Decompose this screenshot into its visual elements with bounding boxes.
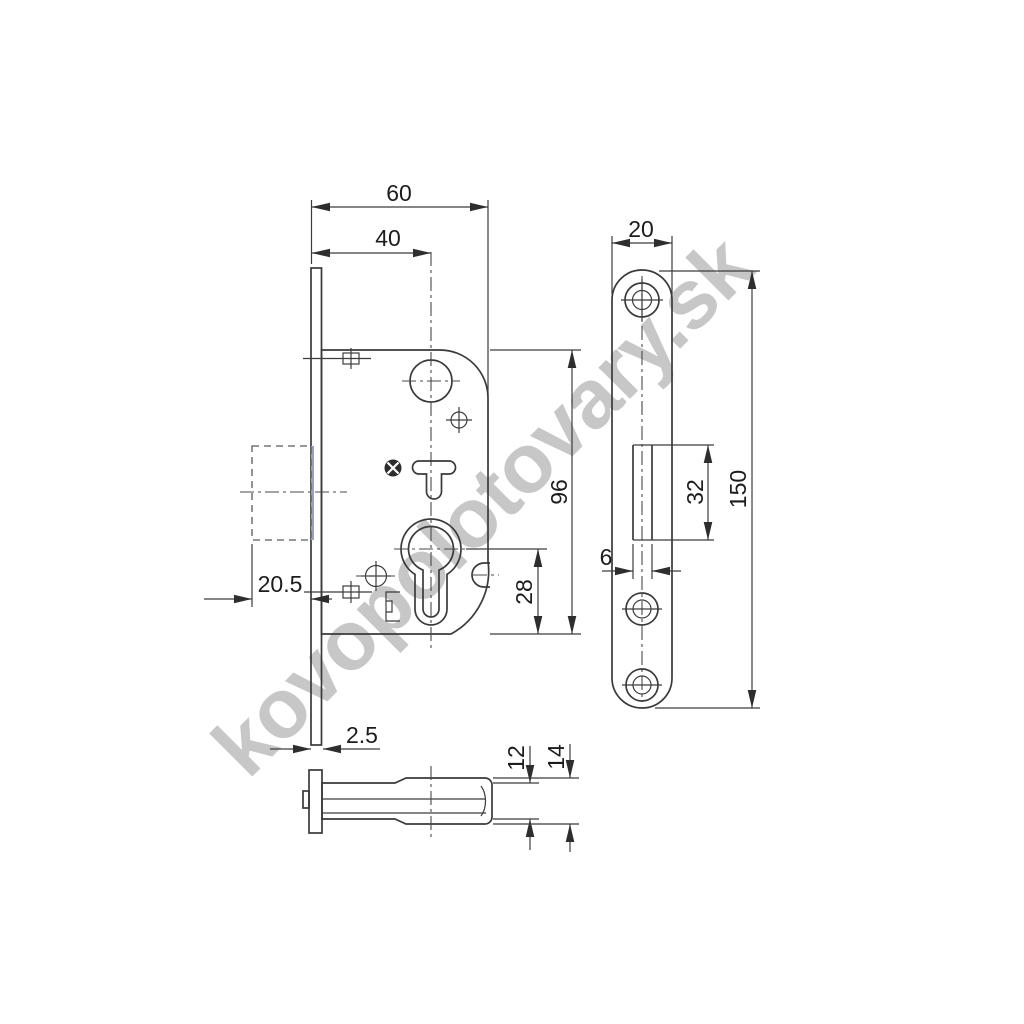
arrowhead [566, 824, 575, 842]
phillips-screw-icon [385, 460, 402, 477]
arrowhead [413, 249, 431, 258]
arrowhead [748, 690, 757, 708]
arrowhead [568, 616, 577, 634]
lock-technical-drawing: 60 40 96 [0, 0, 1024, 1024]
dim-label-6: 6 [600, 544, 613, 570]
arrowhead [534, 549, 543, 567]
arrowhead [704, 445, 713, 463]
arrowhead [652, 567, 670, 576]
side-view: 12 14 [303, 744, 579, 852]
dim-label-28: 28 [511, 579, 537, 605]
latch-tip-side [303, 791, 309, 808]
arrowhead [293, 745, 311, 754]
arrowhead [234, 595, 252, 604]
arrowhead [312, 203, 331, 212]
dim-case-depth: 60 [312, 180, 489, 396]
arrowhead [323, 745, 341, 754]
dim-label-20-5: 20.5 [258, 571, 303, 597]
latch-channel-end [481, 786, 486, 816]
arrowhead [654, 239, 672, 248]
dim-label-12: 12 [503, 745, 529, 771]
faceplate-side-outline [309, 770, 322, 833]
arrowhead [568, 350, 577, 368]
drawing-canvas: kovopolotovary.sk [0, 0, 1024, 1024]
dim-label-60: 60 [386, 180, 412, 206]
dim-body-inner-thickness: 12 [493, 745, 539, 850]
arrowhead [470, 203, 488, 212]
clip-bracket [386, 592, 400, 621]
dim-label-20: 20 [628, 216, 654, 242]
dim-latch-protrusion: 20.5 [204, 544, 332, 607]
t-slot [413, 461, 456, 499]
case-side-outline [322, 778, 492, 824]
dim-label-40: 40 [375, 225, 401, 251]
arrowhead [311, 595, 329, 604]
dim-label-14: 14 [543, 744, 569, 770]
latch-bolt-hidden [252, 446, 311, 540]
arrowhead [615, 567, 633, 576]
front-view: 60 40 96 [204, 180, 581, 753]
dim-faceplate-thickness: 2.5 [270, 722, 380, 753]
fixing-nut-top [303, 348, 371, 369]
screw-hole-top [621, 279, 663, 321]
dim-label-96: 96 [546, 479, 572, 505]
dim-label-150: 150 [725, 470, 751, 508]
arrowhead [526, 819, 535, 837]
dim-cutout-height: 32 [633, 445, 714, 540]
arrowhead [534, 616, 543, 634]
screw-mark-upper [446, 407, 472, 433]
dim-cylinder-to-bottom: 28 [466, 549, 547, 634]
dim-backset: 40 [312, 225, 432, 257]
strike-plate-view: 20 32 6 [600, 216, 760, 708]
dim-label-32: 32 [682, 479, 708, 505]
arrowhead [704, 522, 713, 540]
arrowhead [312, 249, 331, 258]
arrowhead [748, 271, 757, 289]
dim-label-2-5: 2.5 [346, 722, 378, 748]
